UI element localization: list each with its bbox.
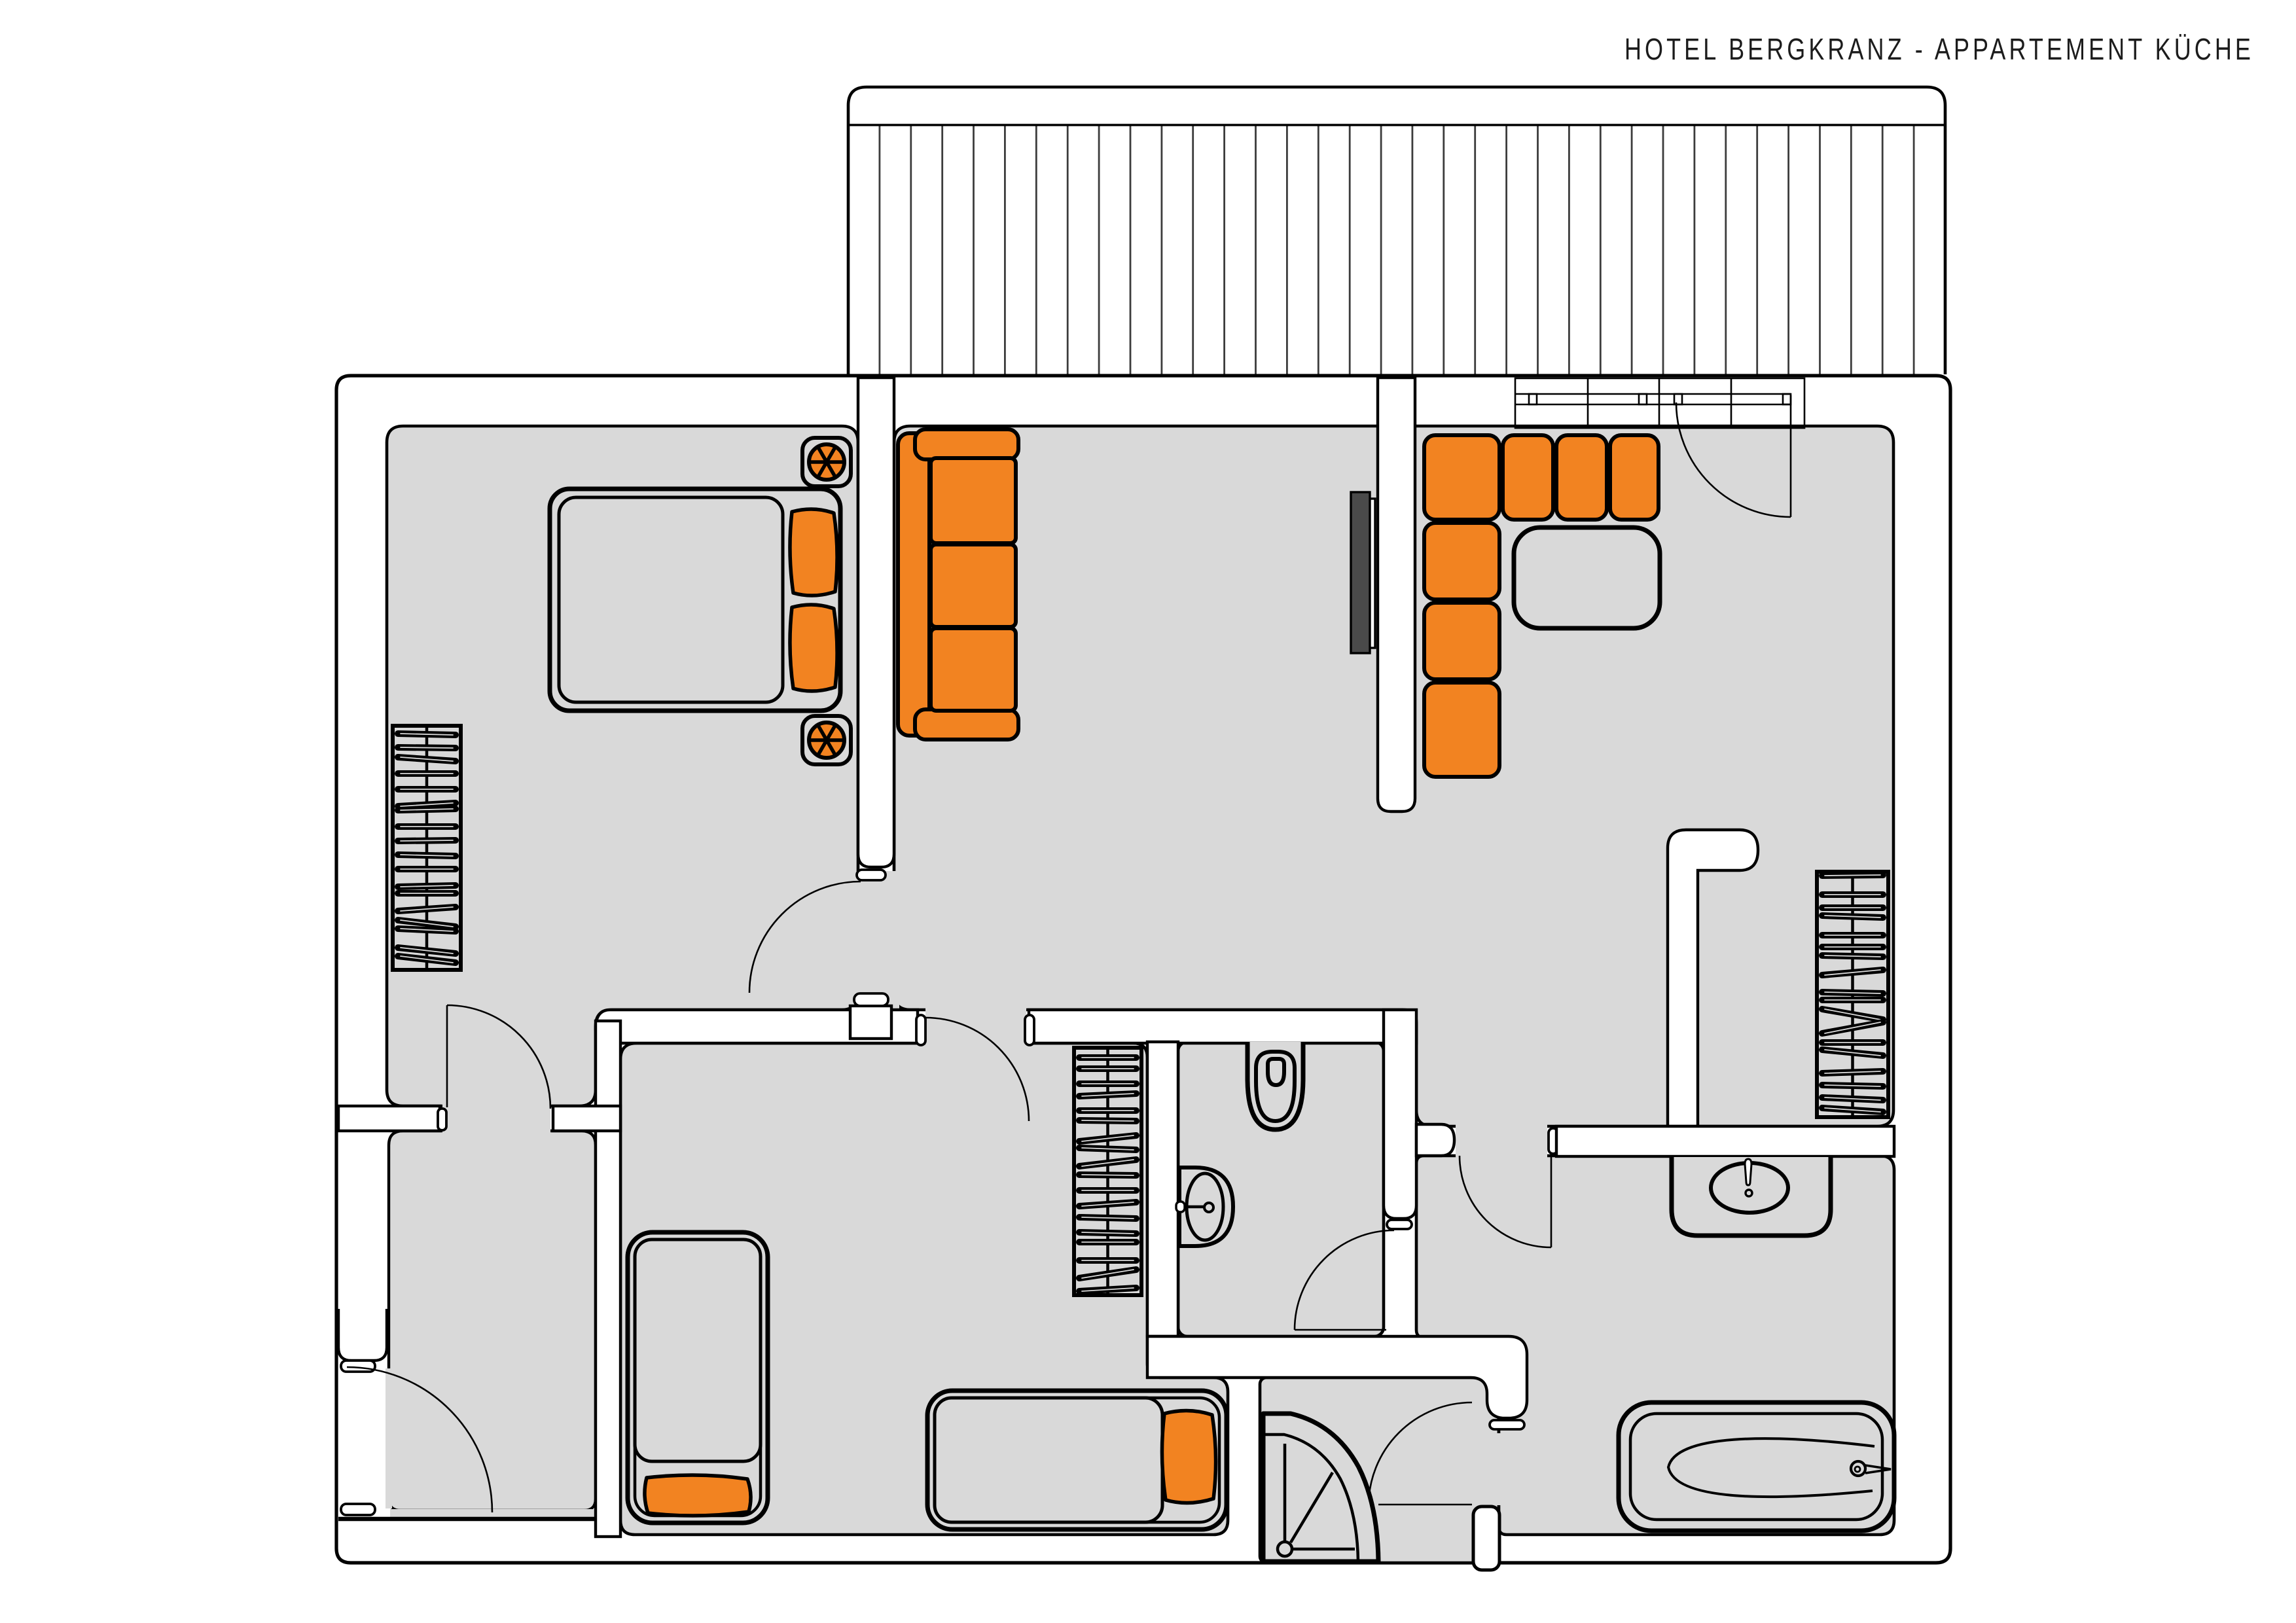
svg-text:HOTEL BERGKRANZ - APPARTEMENT: HOTEL BERGKRANZ - APPARTEMENT KÜCHE: [1624, 32, 2254, 66]
